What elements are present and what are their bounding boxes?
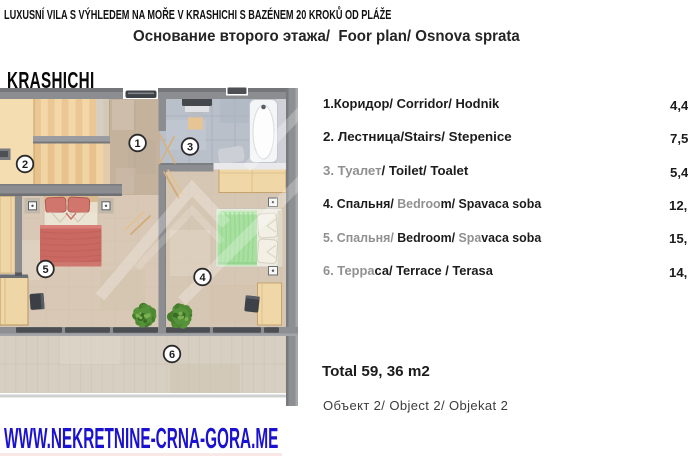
svg-text:3: 3: [187, 141, 193, 153]
svg-text:4: 4: [199, 272, 206, 284]
svg-text:5: 5: [42, 264, 48, 276]
svg-text:6: 6: [169, 349, 175, 361]
svg-text:1: 1: [135, 138, 141, 150]
svg-text:2: 2: [22, 159, 28, 171]
